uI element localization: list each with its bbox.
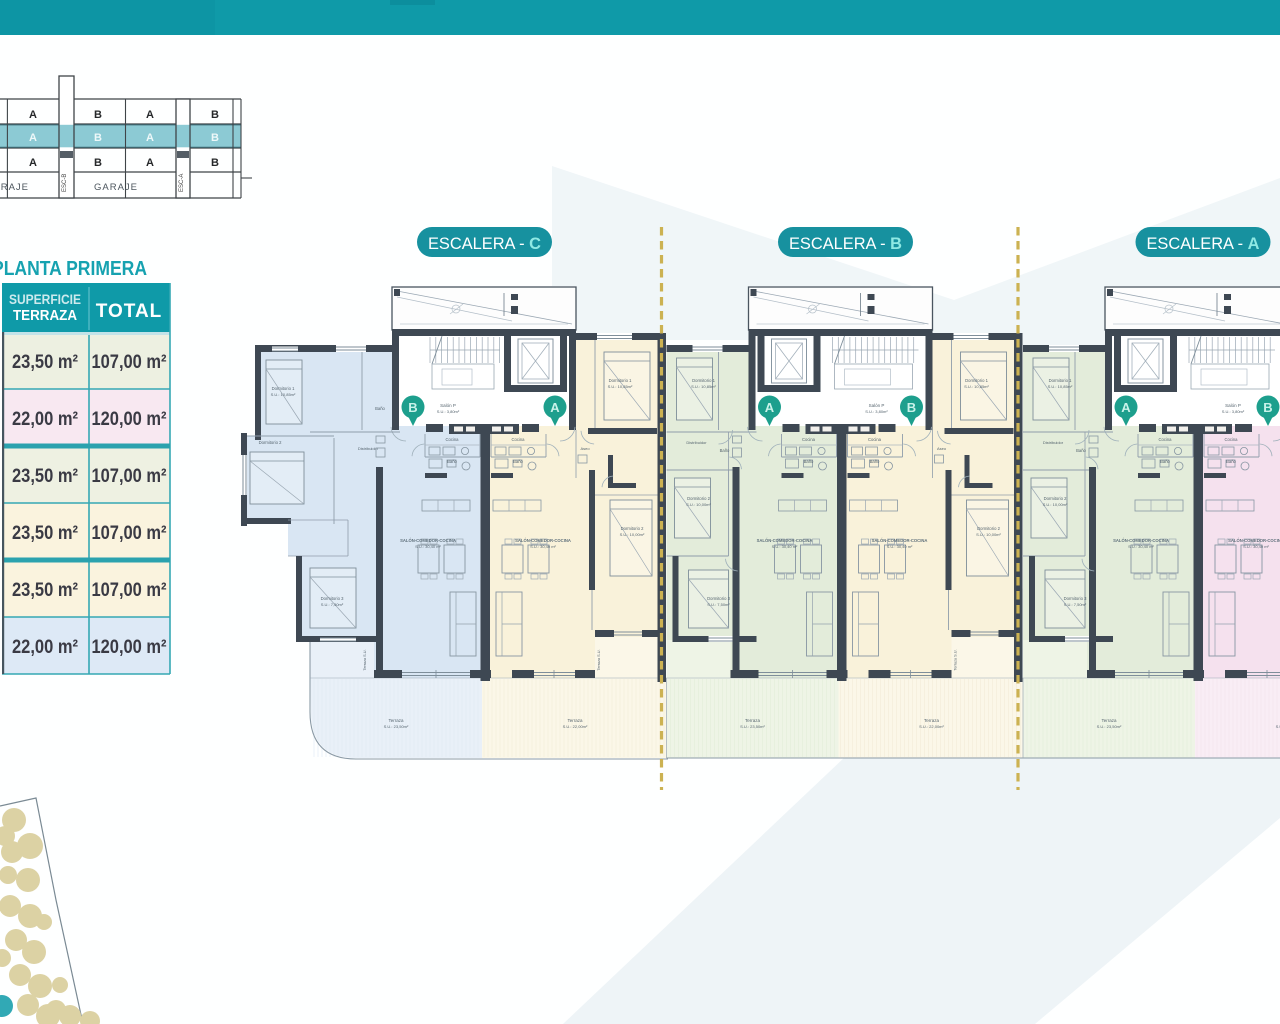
svg-text:Baño: Baño xyxy=(375,406,385,411)
svg-text:S.U.: 3,80m²: S.U.: 3,80m² xyxy=(1222,409,1245,414)
svg-text:S.U.: 30,40 m²: S.U.: 30,40 m² xyxy=(772,544,798,549)
svg-text:Terraza: Terraza xyxy=(1101,718,1117,723)
svg-text:B: B xyxy=(94,132,102,144)
svg-text:GARAJE: GARAJE xyxy=(94,182,138,193)
svg-text:Dormitorio 2: Dormitorio 2 xyxy=(977,526,1000,531)
svg-text:Baño: Baño xyxy=(1076,448,1086,453)
svg-text:S.U.: 23,50m²: S.U.: 23,50m² xyxy=(740,724,765,729)
svg-text:Dormitorio 2: Dormitorio 2 xyxy=(259,440,282,445)
svg-text:A: A xyxy=(550,400,560,415)
svg-text:A: A xyxy=(146,157,154,169)
svg-text:Dormitorio 2: Dormitorio 2 xyxy=(687,496,710,501)
svg-text:Cocina: Cocina xyxy=(1224,437,1238,442)
svg-text:Cocina: Cocina xyxy=(868,437,882,442)
svg-text:22,00 m²: 22,00 m² xyxy=(12,408,78,430)
svg-text:S.U.: 10,85m²: S.U.: 10,85m² xyxy=(964,384,989,389)
svg-text:A: A xyxy=(765,400,775,415)
svg-text:A: A xyxy=(29,109,37,121)
svg-text:S.U.: 10,00m²: S.U.: 10,00m² xyxy=(620,532,645,537)
svg-text:107,00 m²: 107,00 m² xyxy=(92,522,167,544)
svg-text:TERRAZA: TERRAZA xyxy=(13,308,77,324)
svg-text:SALÓN-COMEDOR-COCINA: SALÓN-COMEDOR-COCINA xyxy=(1113,538,1169,543)
svg-text:23,50 m²: 23,50 m² xyxy=(12,522,78,544)
svg-text:107,00 m²: 107,00 m² xyxy=(92,465,167,487)
svg-text:Dormitorio 1: Dormitorio 1 xyxy=(609,378,632,383)
svg-text:22,00 m²: 22,00 m² xyxy=(12,636,78,658)
svg-text:ESC-B: ESC-B xyxy=(62,174,68,192)
svg-text:Dormitorio 1: Dormitorio 1 xyxy=(692,378,715,383)
svg-text:Dormitorio 1: Dormitorio 1 xyxy=(1049,378,1072,383)
svg-text:Dormitorio 1: Dormitorio 1 xyxy=(965,378,988,383)
svg-text:A: A xyxy=(1121,400,1131,415)
svg-text:Dormitorio 3: Dormitorio 3 xyxy=(321,596,344,601)
svg-text:Terraza: Terraza xyxy=(745,718,761,723)
svg-text:B: B xyxy=(94,157,102,169)
svg-text:B: B xyxy=(907,400,916,415)
svg-text:Terraza: Terraza xyxy=(567,718,583,723)
svg-text:S.U.: 30,40 m²: S.U.: 30,40 m² xyxy=(415,544,441,549)
svg-text:S.U.: 23,50m²: S.U.: 23,50m² xyxy=(384,724,409,729)
svg-text:SALÓN-COMEDOR-COCINA: SALÓN-COMEDOR-COCINA xyxy=(872,538,928,543)
svg-text:B: B xyxy=(211,157,219,169)
svg-text:S.U.: 22,00m²: S.U.: 22,00m² xyxy=(563,724,588,729)
svg-text:Salón P: Salón P xyxy=(440,403,456,408)
svg-text:Terraza: Terraza xyxy=(388,718,404,723)
svg-text:S.U.: 10,85m²: S.U.: 10,85m² xyxy=(1048,384,1073,389)
svg-text:TOTAL: TOTAL xyxy=(96,301,163,322)
svg-text:S.U.: 10,85m²: S.U.: 10,85m² xyxy=(608,384,633,389)
svg-text:Cocina: Cocina xyxy=(511,437,525,442)
svg-text:S.U.: 10,85m²: S.U.: 10,85m² xyxy=(271,392,296,397)
svg-text:23,50 m²: 23,50 m² xyxy=(12,579,78,601)
svg-text:Terraza S.U.: Terraza S.U. xyxy=(597,649,601,670)
svg-text:Distribuidor: Distribuidor xyxy=(1043,440,1064,445)
svg-text:Distribuidor: Distribuidor xyxy=(686,440,707,445)
svg-text:Baño: Baño xyxy=(1226,459,1236,464)
svg-text:S.U.: 10,00m²: S.U.: 10,00m² xyxy=(1043,502,1068,507)
svg-text:SALÓN-COMEDOR-COCINA: SALÓN-COMEDOR-COCINA xyxy=(757,538,813,543)
svg-text:S.U.: 10,00m²: S.U.: 10,00m² xyxy=(976,532,1001,537)
svg-text:S.U.: 7,50m²: S.U.: 7,50m² xyxy=(1064,602,1087,607)
svg-text:120,00 m²: 120,00 m² xyxy=(92,636,167,658)
svg-text:Terraza S.U.: Terraza S.U. xyxy=(954,649,958,670)
svg-text:A: A xyxy=(146,132,154,144)
svg-text:Baño: Baño xyxy=(513,459,523,464)
svg-text:Baño: Baño xyxy=(804,459,814,464)
svg-text:S.U.: 30,40 m²: S.U.: 30,40 m² xyxy=(887,544,913,549)
svg-text:Cocina: Cocina xyxy=(445,437,459,442)
svg-text:S.U.: 10,85m²: S.U.: 10,85m² xyxy=(691,384,716,389)
svg-text:S.U.: 7,50m²: S.U.: 7,50m² xyxy=(707,602,730,607)
svg-text:B: B xyxy=(408,400,417,415)
svg-text:Baño: Baño xyxy=(720,448,730,453)
svg-text:S.U.: 22,00m²: S.U.: 22,00m² xyxy=(919,724,944,729)
svg-text:Baño: Baño xyxy=(1160,459,1170,464)
svg-text:S.U.: 22,00m²: S.U.: 22,00m² xyxy=(1276,724,1280,729)
svg-text:Baño: Baño xyxy=(447,459,457,464)
svg-text:A: A xyxy=(29,157,37,169)
svg-text:Cocina: Cocina xyxy=(802,437,816,442)
svg-text:Aseo: Aseo xyxy=(580,446,590,451)
svg-text:ESC-A: ESC-A xyxy=(179,174,185,192)
svg-text:S.U.: 3,80m²: S.U.: 3,80m² xyxy=(865,409,888,414)
svg-text:S.U.: 30,40 m²: S.U.: 30,40 m² xyxy=(1128,544,1154,549)
svg-text:Dormitorio 3: Dormitorio 3 xyxy=(707,596,730,601)
svg-text:ESCALERA - C: ESCALERA - C xyxy=(428,234,541,253)
svg-text:SALÓN-COMEDOR-COCINA: SALÓN-COMEDOR-COCINA xyxy=(515,538,571,543)
svg-text:S.U.: 3,80m²: S.U.: 3,80m² xyxy=(437,409,460,414)
svg-text:B: B xyxy=(1263,400,1272,415)
svg-text:S.U.: 10,00m²: S.U.: 10,00m² xyxy=(686,502,711,507)
svg-text:Dormitorio 3: Dormitorio 3 xyxy=(1064,596,1087,601)
svg-text:S.U.: 30,40 m²: S.U.: 30,40 m² xyxy=(1243,544,1269,549)
svg-text:Baño: Baño xyxy=(870,459,880,464)
svg-text:SALÓN-COMEDOR-COCINA: SALÓN-COMEDOR-COCINA xyxy=(1228,538,1280,543)
svg-text:107,00 m²: 107,00 m² xyxy=(92,579,167,601)
svg-text:23,50 m²: 23,50 m² xyxy=(12,465,78,487)
svg-text:Aseo: Aseo xyxy=(937,446,947,451)
svg-text:S.U.: 23,50m²: S.U.: 23,50m² xyxy=(1097,724,1122,729)
svg-text:GARAJE: GARAJE xyxy=(0,182,29,193)
svg-text:PLANTA PRIMERA: PLANTA PRIMERA xyxy=(0,257,147,280)
svg-text:120,00 m²: 120,00 m² xyxy=(92,408,167,430)
svg-text:SALÓN-COMEDOR-COCINA: SALÓN-COMEDOR-COCINA xyxy=(400,538,456,543)
svg-text:A: A xyxy=(29,132,37,144)
svg-text:107,00 m²: 107,00 m² xyxy=(92,351,167,373)
svg-text:ESCALERA - A: ESCALERA - A xyxy=(1147,234,1260,253)
svg-text:Terraza S.U.: Terraza S.U. xyxy=(363,649,367,670)
svg-text:Terraza: Terraza xyxy=(924,718,940,723)
svg-text:Salón P: Salón P xyxy=(869,403,885,408)
svg-text:B: B xyxy=(211,109,219,121)
svg-text:Dormitorio 2: Dormitorio 2 xyxy=(1044,496,1067,501)
svg-text:SUPERFICIE: SUPERFICIE xyxy=(9,292,81,307)
svg-text:Dormitorio 1: Dormitorio 1 xyxy=(272,386,295,391)
svg-text:23,50 m²: 23,50 m² xyxy=(12,351,78,373)
svg-text:B: B xyxy=(94,109,102,121)
svg-text:Cocina: Cocina xyxy=(1158,437,1172,442)
svg-text:ESCALERA - B: ESCALERA - B xyxy=(789,234,902,253)
svg-text:Salón P: Salón P xyxy=(1225,403,1241,408)
svg-text:B: B xyxy=(211,132,219,144)
svg-text:Dormitorio 2: Dormitorio 2 xyxy=(621,526,644,531)
svg-text:A: A xyxy=(146,109,154,121)
svg-text:S.U.: 7,50m²: S.U.: 7,50m² xyxy=(321,602,344,607)
svg-text:S.U.: 30,40 m²: S.U.: 30,40 m² xyxy=(530,544,556,549)
